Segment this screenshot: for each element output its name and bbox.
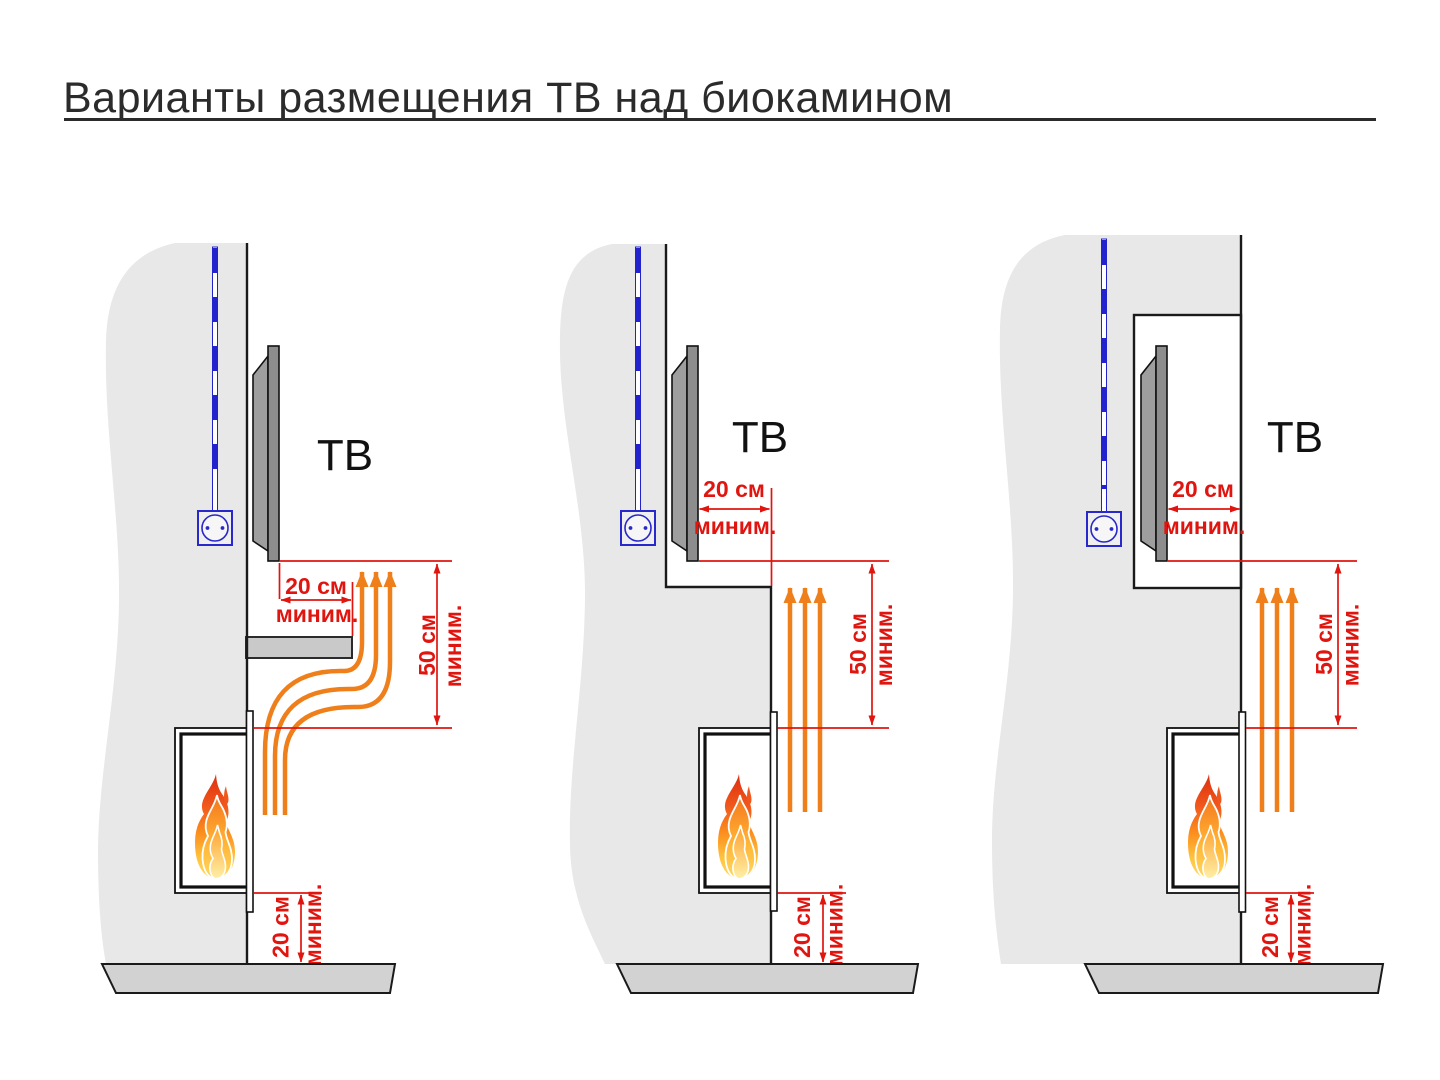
fireplace-glass [771, 712, 778, 911]
diagram-canvas: ТВ 20 см миним. 50 см миним. 20 см миним… [0, 0, 1440, 1080]
floor [102, 964, 395, 993]
side-clearance-value: 20 см [1172, 476, 1234, 502]
side-clearance-value: 20 см [285, 573, 347, 599]
fireplace [1167, 728, 1241, 893]
tv-side-view [253, 346, 279, 561]
tv-label: ТВ [732, 413, 788, 462]
floor-clearance-qualifier: миним. [300, 884, 326, 967]
side-clearance-value: 20 см [703, 476, 765, 502]
tv-label: ТВ [317, 431, 373, 480]
floor [1085, 964, 1383, 993]
height-clearance-value: 50 см [1311, 613, 1337, 675]
heat-flow-arrows [790, 588, 820, 812]
power-cable [1102, 239, 1107, 512]
floor-clearance-qualifier: миним. [1290, 884, 1316, 967]
floor-clearance-value: 20 см [1257, 896, 1283, 958]
floor [617, 964, 918, 993]
side-clearance-qualifier: миним. [694, 513, 777, 539]
power-cable [636, 247, 641, 512]
floor-clearance-value: 20 см [789, 896, 815, 958]
heat-flow-arrows [1262, 588, 1292, 812]
fireplace-glass [1239, 712, 1246, 912]
fireplace [699, 728, 773, 893]
fireplace-glass [247, 711, 254, 912]
height-clearance-value: 50 см [414, 614, 440, 676]
height-clearance-qualifier: миним. [871, 604, 897, 687]
power-cable [213, 247, 218, 512]
height-clearance-qualifier: миним. [440, 605, 466, 688]
fireplace [175, 728, 249, 893]
tv-label: ТВ [1267, 413, 1323, 462]
floor-clearance-qualifier: миним. [822, 884, 848, 967]
power-outlet [621, 511, 655, 545]
side-clearance-qualifier: миним. [1163, 513, 1246, 539]
floor-clearance-value: 20 см [268, 896, 294, 958]
diagram-2: ТВ 20 см миним. 50 см миним. 20 см миним… [560, 244, 918, 993]
height-clearance-qualifier: миним. [1338, 604, 1364, 687]
power-outlet [1087, 512, 1121, 546]
height-clearance-value: 50 см [845, 613, 871, 675]
diagram-1: ТВ 20 см миним. 50 см миним. 20 см миним… [98, 243, 466, 993]
shelf [246, 637, 352, 658]
power-outlet [198, 511, 232, 545]
diagram-3: ТВ 20 см миним. 50 см миним. 20 см миним… [992, 235, 1383, 993]
side-clearance-qualifier: миним. [276, 601, 359, 627]
